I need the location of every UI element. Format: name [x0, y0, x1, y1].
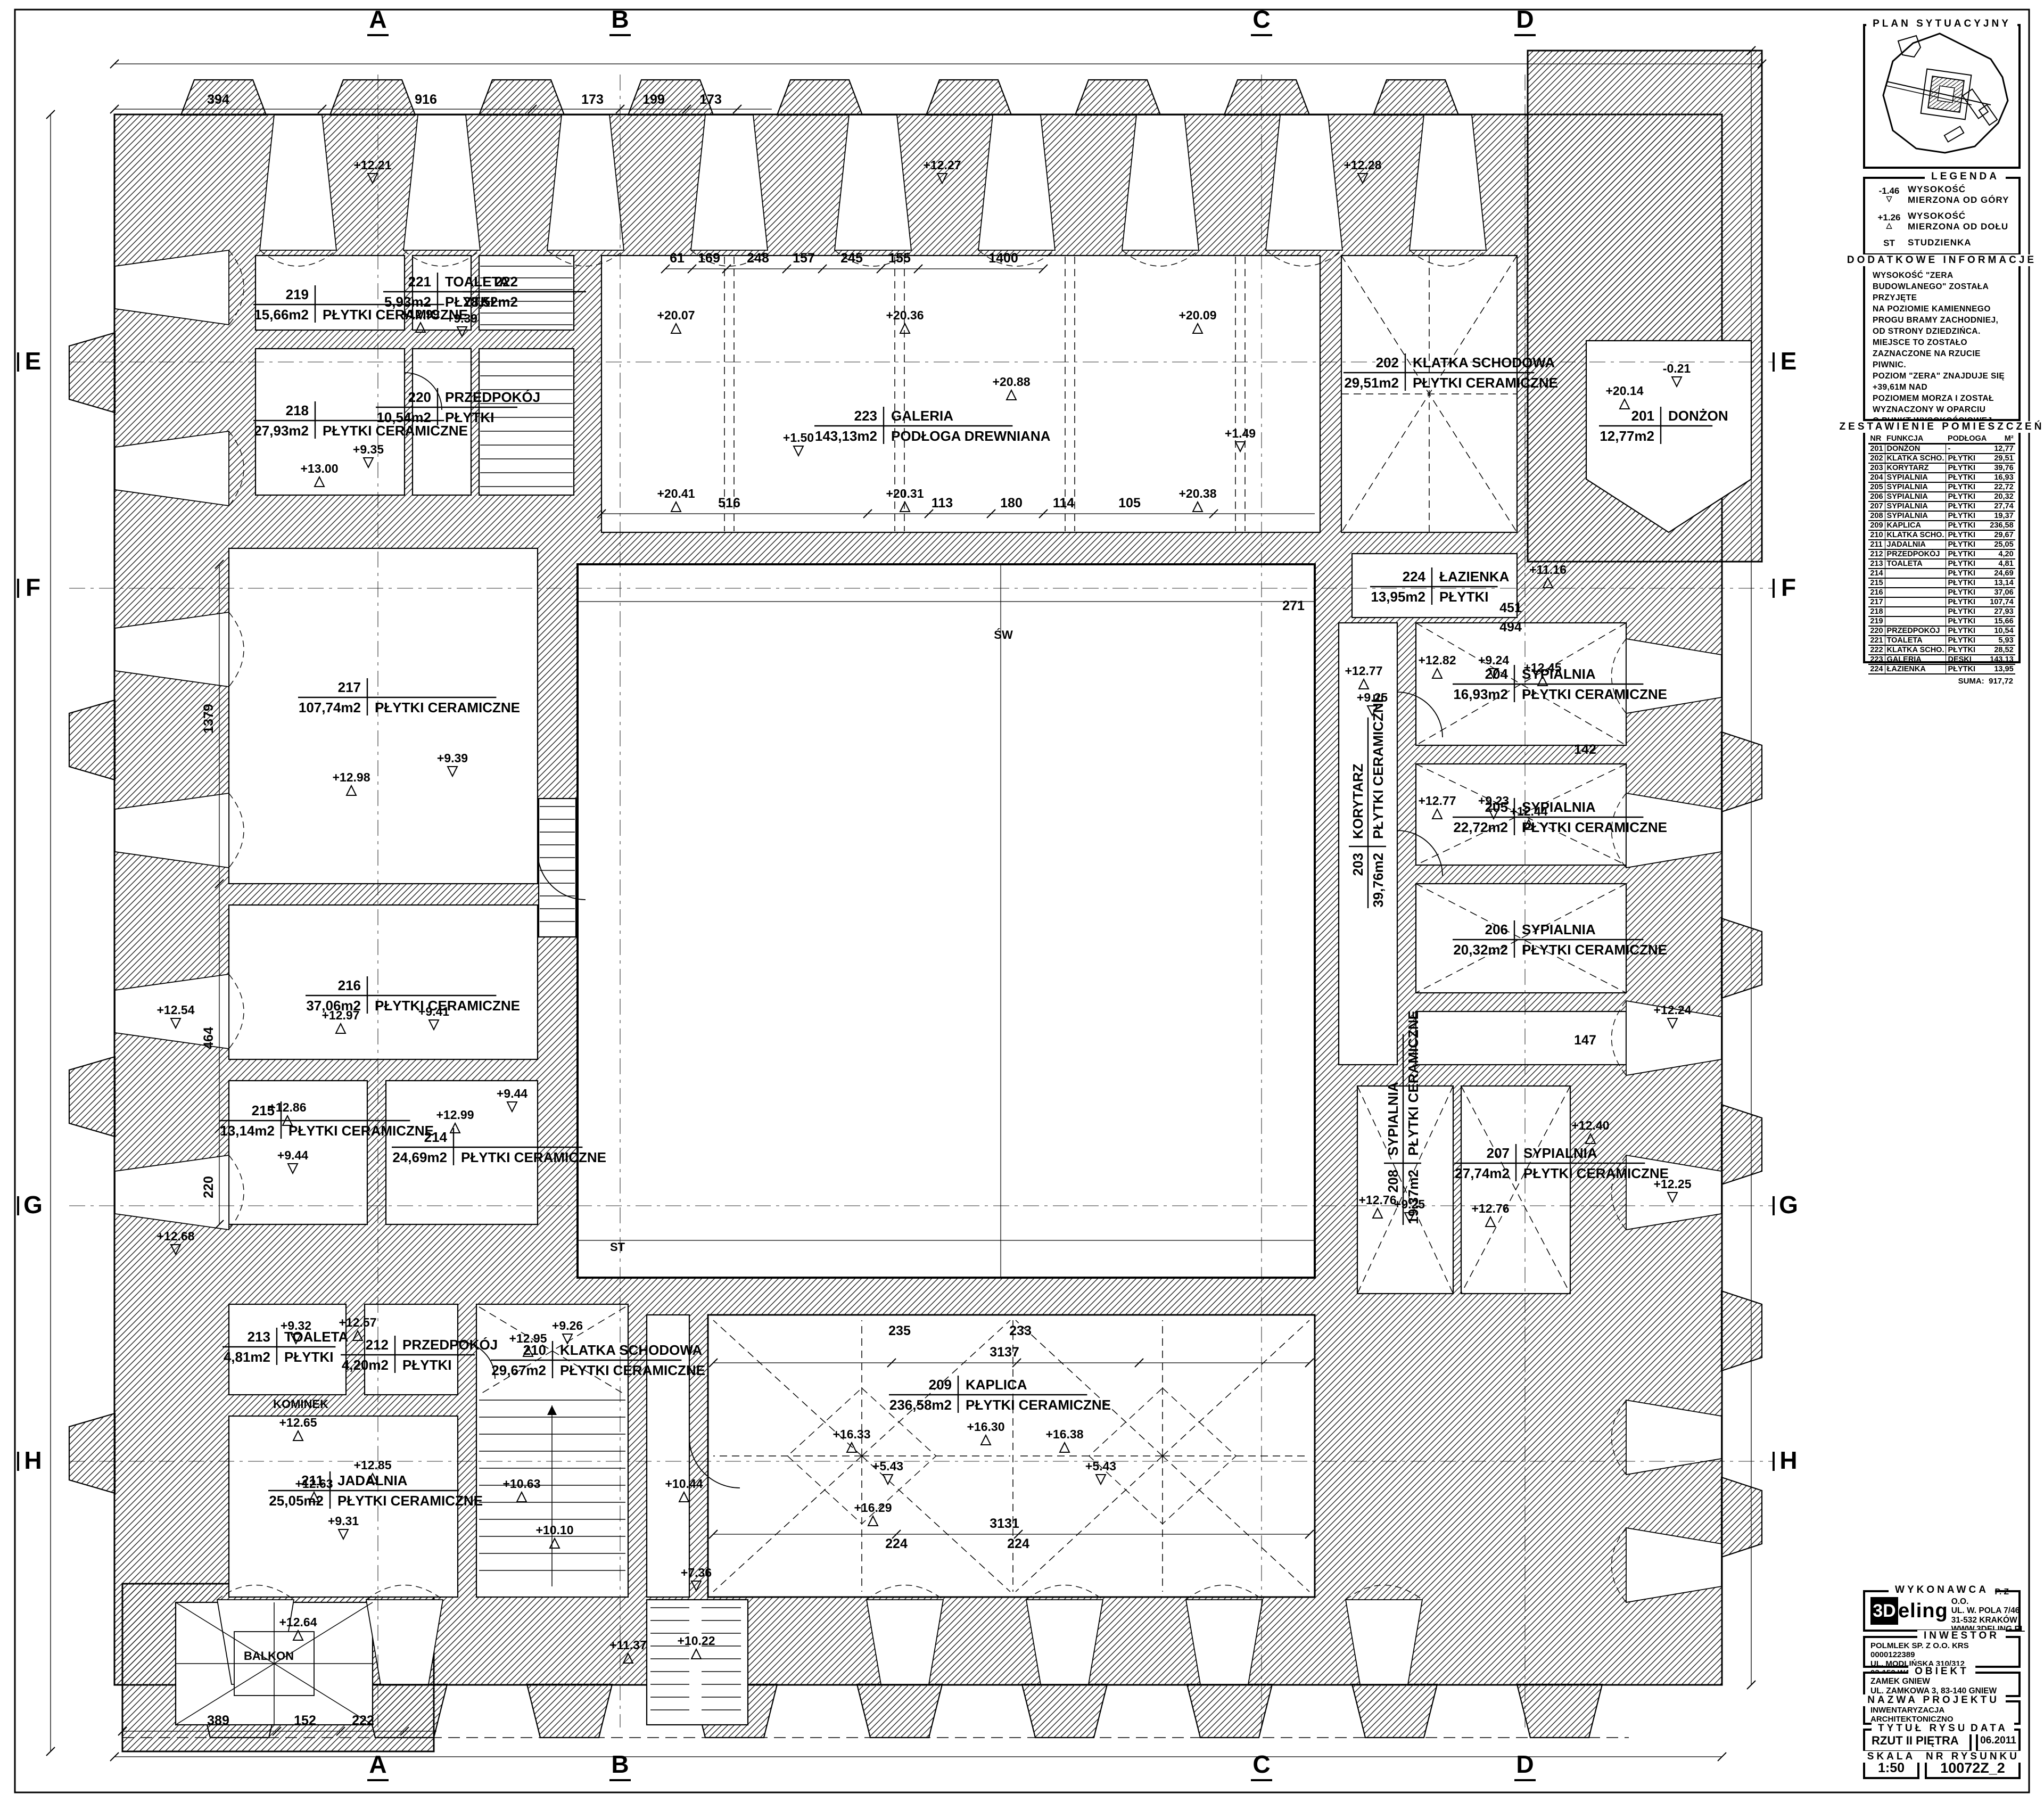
schedule-cell: 213	[1868, 559, 1885, 569]
schedule-cell: DONŻON	[1885, 444, 1946, 454]
room-number: 203	[1350, 853, 1366, 876]
schedule-cell: 223	[1868, 655, 1885, 664]
schedule-cell: 210	[1868, 530, 1885, 540]
schedule-cell: 4,81	[1988, 559, 2015, 569]
room-number: 224	[1403, 569, 1426, 585]
schedule-cell: 29,51	[1988, 454, 2015, 463]
dim-value: 248	[747, 251, 769, 266]
schedule-cell	[1885, 616, 1946, 626]
plan-annotation: ŚW	[994, 628, 1013, 641]
schedule-cell: PŁYTKI	[1946, 540, 1988, 549]
wall-mass	[1721, 732, 1762, 812]
wall-mass	[1721, 1105, 1762, 1184]
schedule-cell: PŁYTKI	[1946, 511, 1988, 521]
level-value: +5.43	[872, 1459, 903, 1473]
schedule-cell: PŁYTKI	[1946, 645, 1988, 655]
legend-symbol-value: -1.46	[1870, 187, 1908, 195]
dim-value: 245	[840, 251, 863, 266]
schedule-row: 202KLATKA SCHO.PŁYTKI29,51	[1868, 454, 2015, 463]
legend-symbol-icon: -1.46▽	[1870, 187, 1908, 203]
schedule-row: 219PŁYTKI15,66	[1868, 616, 2015, 626]
room-area: 29,51m2	[1344, 375, 1399, 391]
wall-mass	[926, 80, 1011, 115]
room-area: 24,69m2	[392, 1149, 447, 1165]
dim-value: 113	[932, 496, 953, 511]
dim-value: 3137	[990, 1345, 1019, 1360]
floor-plan-drawing: 3949161731991736116924815724515514005161…	[0, 0, 2044, 1802]
legend-symbol-glyph: △	[1870, 221, 1908, 229]
schedule-column-header: FUNKCJA	[1885, 434, 1946, 444]
level-value: +16.29	[854, 1501, 892, 1515]
schedule-cell: PŁYTKI	[1946, 549, 1988, 559]
level-value: +1.49	[1225, 426, 1256, 440]
room-name: KLATKA SCHODOWA	[1413, 355, 1555, 371]
level-value: +12.76	[1472, 1202, 1510, 1215]
dim-value: 516	[718, 496, 740, 511]
schedule-cell: 214	[1868, 569, 1885, 578]
schedule-row: 218PŁYTKI27,93	[1868, 607, 2015, 616]
schedule-cell: 203	[1868, 463, 1885, 473]
grid-label: D	[1516, 5, 1534, 33]
room-floor: PŁYTKI CERAMICZNE	[375, 700, 520, 715]
grid-label: E	[1781, 347, 1797, 375]
room-area: 4,20m2	[342, 1357, 389, 1373]
room-area: 29,67m2	[491, 1362, 546, 1378]
room-floor: PŁYTKI CERAMICZNE	[1522, 819, 1667, 835]
info-line: WYSOKOŚĆ "ZERA BUDOWLANEGO" ZOSTAŁA PRZY…	[1873, 270, 2012, 303]
wall-mass	[362, 1684, 447, 1738]
room-area: 39,76m2	[1370, 853, 1386, 908]
level-value: +12.40	[1572, 1118, 1610, 1132]
schedule-cell: 204	[1868, 473, 1885, 482]
level-value: +12.64	[279, 1615, 317, 1629]
schedule-cell: 13,14	[1988, 578, 2015, 588]
dim-value: 916	[415, 92, 437, 107]
level-value: +10.44	[665, 1477, 703, 1491]
level-value: +20.07	[657, 308, 695, 322]
legend-symbol-value: +1.26	[1870, 213, 1908, 221]
schedule-cell: DESKI	[1946, 655, 1988, 664]
dim-value: 3131	[990, 1516, 1019, 1531]
schedule-cell	[1885, 578, 1946, 588]
schedule-cell: PŁYTKI	[1946, 616, 1988, 626]
room-floor: PŁYTKI CERAMICZNE	[560, 1362, 705, 1378]
schedule-cell: 218	[1868, 607, 1885, 616]
schedule-cell: 224	[1868, 664, 1885, 674]
room	[1352, 554, 1517, 618]
schedule-row: 217PŁYTKI107,74	[1868, 597, 2015, 607]
schedule-cell: 208	[1868, 511, 1885, 521]
schedule-row: 215PŁYTKI13,14	[1868, 578, 2015, 588]
room-area: 13,95m2	[1371, 589, 1425, 605]
schedule-cell: PRZEDPOKÓJ	[1885, 626, 1946, 636]
schedule-cell: PŁYTKI	[1946, 521, 1988, 530]
dim-value: 199	[642, 92, 665, 107]
schedule-cell: KORYTARZ	[1885, 463, 1946, 473]
room-area: 16,93m2	[1453, 686, 1508, 702]
schedule-cell: KLATKA SCHO.	[1885, 645, 1946, 655]
schedule-row: 204SYPIALNIAPŁYTKI16,93	[1868, 473, 2015, 482]
schedule-cell: 13,95	[1988, 664, 2015, 674]
schedule-cell: 5,93	[1988, 636, 2015, 645]
schedule-cell: PŁYTKI	[1946, 636, 1988, 645]
schedule-row: 220PRZEDPOKÓJPŁYTKI10,54	[1868, 626, 2015, 636]
level-value: +20.31	[886, 487, 924, 500]
schedule-cell: 212	[1868, 549, 1885, 559]
company-line: 31-532 KRAKÓW	[1951, 1616, 2025, 1625]
schedule-cell: PŁYTKI	[1946, 454, 1988, 463]
legend-item-label: WYSOKOŚĆ MIERZONA OD DOŁU	[1908, 211, 2013, 232]
schedule-sum: SUMA: 917,72	[1865, 674, 2018, 686]
schedule-row: 221TOALETAPŁYTKI5,93	[1868, 636, 2015, 645]
dim-value: 114	[1053, 496, 1074, 511]
schedule-cell: 236,58	[1988, 521, 2015, 530]
titleblock-number: NR RYSUNKU 10072Z_2	[1925, 1757, 2021, 1779]
room-number: 209	[929, 1377, 952, 1393]
level-value: +12.24	[1654, 1003, 1692, 1017]
room-floor: PŁYTKI CERAMICZNE	[1405, 1010, 1421, 1156]
schedule-cell: 207	[1868, 501, 1885, 511]
level-value: +12.76	[1359, 1193, 1397, 1207]
level-value: +13.00	[301, 462, 339, 475]
dim-value: 180	[1000, 496, 1023, 511]
room-area: 12,77m2	[1600, 428, 1654, 444]
room-floor: PŁYTKI CERAMICZNE	[289, 1123, 434, 1139]
level-value: +10.10	[536, 1523, 574, 1537]
grid-label: E	[25, 347, 42, 375]
wall-mass	[527, 1684, 612, 1738]
schedule-cell: 24,69	[1988, 569, 2015, 578]
dim-value: 152	[294, 1713, 316, 1728]
room-name: SYPIALNIA	[1385, 1082, 1401, 1156]
titleblock-contractor: WYKONAWCA 3D eling 3DELING SP. Z O.O.UL.…	[1863, 1590, 2021, 1632]
dim-value: 222	[352, 1713, 374, 1728]
info-line: MIEJSCE TO ZOSTAŁO ZAZNACZONE NA RZUCIE …	[1873, 337, 2012, 371]
schedule-cell: JADALNIA	[1885, 540, 1946, 549]
level-value: +16.38	[1046, 1427, 1084, 1441]
level-value: +9.23	[1478, 794, 1509, 808]
schedule-cell: 202	[1868, 454, 1885, 463]
dim-value: 220	[201, 1176, 216, 1198]
level-value: +12.68	[157, 1229, 195, 1243]
grid-label: G	[23, 1191, 43, 1219]
grid-label: H	[1779, 1446, 1797, 1474]
schedule-cell: SYPIALNIA	[1885, 511, 1946, 521]
grid-label: F	[1781, 573, 1796, 601]
schedule-cell: SYPIALNIA	[1885, 473, 1946, 482]
dim-value: 1400	[988, 251, 1018, 266]
level-value: +12.65	[279, 1416, 317, 1429]
level-value: +11.37	[609, 1638, 647, 1652]
schedule-cell: SYPIALNIA	[1885, 482, 1946, 492]
grid-label: A	[369, 5, 386, 33]
titleblock-investor: INWESTOR POLMLEK SP. Z O.O. KRS 00001223…	[1863, 1636, 2021, 1668]
info-line: POZIOM "ZERA" ZNAJDUJE SIĘ +39,61M NAD	[1873, 371, 2012, 393]
room	[647, 1600, 748, 1725]
drawing-sheet: 3949161731991736116924815724515514005161…	[0, 0, 2044, 1802]
schedule-row: 205SYPIALNIAPŁYTKI22,72	[1868, 482, 2015, 492]
schedule-cell	[1885, 597, 1946, 607]
wall-mass	[1517, 1684, 1602, 1738]
grid-label: A	[369, 1750, 386, 1778]
level-value: +20.38	[1179, 487, 1217, 500]
room-area: 20,32m2	[1453, 942, 1508, 958]
dim-value: 233	[1009, 1323, 1032, 1338]
schedule-cell: TOALETA	[1885, 559, 1946, 569]
titleblock-drawing-title: TYTUŁ RYSUNKU RZUT II PIĘTRA	[1863, 1729, 1972, 1752]
room-number: 222	[495, 274, 518, 290]
titleblock-object: OBIEKT ZAMEK GNIEWUL. ZAMKOWA 3, 83-140 …	[1863, 1672, 2021, 1697]
schedule-cell: PŁYTKI	[1946, 578, 1988, 588]
info-line: OD STRONY DZIEDZIŃCA.	[1873, 326, 2012, 337]
level-value: +12.82	[1419, 653, 1456, 667]
grid-label: B	[611, 5, 629, 33]
room-area: 22,72m2	[1453, 819, 1508, 835]
schedule-cell	[1885, 569, 1946, 578]
level-value: +9.41	[418, 1005, 449, 1018]
schedule-cell: PŁYTKI	[1946, 492, 1988, 501]
room-name: GALERIA	[891, 408, 953, 424]
schedule-row: 216PŁYTKI37,06	[1868, 588, 2015, 597]
level-value: +11.16	[1529, 563, 1567, 577]
room-number: 218	[286, 402, 309, 418]
dim-value: 464	[201, 1027, 216, 1049]
schedule-column-header: PODŁOGA	[1946, 434, 1988, 444]
room-floor: PŁYTKI CERAMICZNE	[461, 1149, 606, 1165]
wall-mass	[1721, 1477, 1762, 1557]
room	[229, 548, 538, 884]
dim-value: 173	[699, 92, 722, 107]
level-value: +12.25	[1654, 1177, 1692, 1191]
project-name-line: INWENTARYZACJA ARCHITEKTONICZNO	[1870, 1706, 2013, 1724]
grid-label: B	[611, 1750, 629, 1778]
room-schedule-box: ZESTAWIENIE POMIESZCZEŃ NRFUNKCJAPODŁOGA…	[1863, 427, 2021, 663]
level-value: +20.14	[1606, 384, 1644, 398]
investor-line: POLMLEK SP. Z O.O. KRS 0000122389	[1870, 1641, 2013, 1659]
investor-label: INWESTOR	[1917, 1630, 2006, 1642]
wall-mass	[1022, 1684, 1107, 1738]
schedule-cell: 201	[1868, 444, 1885, 454]
schedule-cell: PŁYTKI	[1946, 664, 1988, 674]
schedule-cell	[1885, 607, 1946, 616]
level-value: +9.25	[1357, 690, 1388, 704]
level-value: +12.95	[509, 1331, 547, 1345]
wall-mass	[1721, 1291, 1762, 1371]
room-schedule-title: ZESTAWIENIE POMIESZCZEŃ	[1833, 421, 2044, 433]
schedule-cell: 4,20	[1988, 549, 2015, 559]
room-number: 221	[408, 274, 431, 290]
room-floor: PODŁOGA DREWNIANA	[891, 428, 1051, 444]
wall-mass	[1224, 80, 1309, 115]
level-value: +12.77	[1345, 664, 1383, 678]
schedule-cell: 20,32	[1988, 492, 2015, 501]
schedule-cell: 211	[1868, 540, 1885, 549]
grid-label: H	[24, 1446, 42, 1474]
legend-item: +1.26△WYSOKOŚĆ MIERZONA OD DOŁU	[1870, 211, 2013, 232]
project-name-label: NAZWA PROJEKTU	[1861, 1694, 2006, 1706]
titleblock-scale: SKALA 1:50	[1863, 1757, 1919, 1779]
wall-mass	[69, 700, 115, 780]
schedule-row: 213TOALETAPŁYTKI4,81	[1868, 559, 2015, 569]
room-floor: PŁYTKI CERAMICZNE	[1523, 1165, 1669, 1181]
schedule-cell: 25,05	[1988, 540, 2015, 549]
room-area: 4,81m2	[224, 1349, 270, 1365]
level-value: +12.86	[269, 1100, 307, 1114]
level-value: +12.99	[436, 1108, 474, 1122]
schedule-row: 209KAPLICAPŁYTKI236,58	[1868, 521, 2015, 530]
titleblock-project: NAZWA PROJEKTU INWENTARYZACJA ARCHITEKTO…	[1863, 1700, 2021, 1725]
level-value: +12.45	[1524, 661, 1562, 674]
dim-value: 155	[888, 251, 911, 266]
level-value: +12.57	[339, 1315, 377, 1329]
wall-mass	[1721, 918, 1762, 998]
level-value: +9.44	[277, 1148, 308, 1162]
drawing-number-label: NR RYSUNKU	[1919, 1751, 2026, 1763]
schedule-cell: PŁYTKI	[1946, 626, 1988, 636]
legend-symbol-glyph: ▽	[1870, 195, 1908, 203]
room-floor: PŁYTKI	[445, 409, 494, 425]
level-value: +9.44	[497, 1087, 528, 1100]
schedule-row: 224ŁAZIENKAPŁYTKI13,95	[1868, 664, 2015, 674]
level-value: +7.36	[681, 1566, 712, 1579]
wall-mass	[777, 80, 862, 115]
room-area: 15,66m2	[254, 307, 309, 323]
info-line: POZIOMEM MORZA I ZOSTAŁ WYZNACZONY W OPA…	[1873, 393, 2012, 415]
schedule-cell: PŁYTKI	[1946, 597, 1988, 607]
dim-value: 169	[698, 251, 720, 266]
schedule-cell: 29,67	[1988, 530, 2015, 540]
plan-annotation: KOMINEK	[273, 1397, 328, 1411]
schedule-cell: 27,74	[1988, 501, 2015, 511]
legend-symbol-icon: ST	[1870, 239, 1908, 247]
schedule-cell: 209	[1868, 521, 1885, 530]
schedule-cell: PRZEDPOKÓJ	[1885, 549, 1946, 559]
level-value: +10.22	[678, 1634, 715, 1648]
schedule-cell: 205	[1868, 482, 1885, 492]
room-number: 220	[408, 389, 431, 405]
level-value: +20.36	[886, 308, 924, 322]
legend-item-label: STUDZIENKA	[1908, 237, 1972, 248]
legend-item: STSTUDZIENKA	[1870, 237, 2013, 248]
schedule-cell: SYPIALNIA	[1885, 492, 1946, 501]
scale-label: SKALA	[1861, 1751, 1922, 1763]
room-label: 20229,51m2KLATKA SCHODOWAPŁYTKI CERAMICZ…	[1344, 353, 1558, 391]
wall-mass	[479, 80, 564, 115]
room-area: 107,74m2	[299, 700, 361, 715]
room-name: PRZEDPOKÓJ	[445, 389, 540, 405]
dim-value: 224	[885, 1536, 908, 1551]
schedule-row: 201DONŻON-12,77	[1868, 444, 2015, 454]
schedule-row: 212PRZEDPOKÓJPŁYTKI4,20	[1868, 549, 2015, 559]
dim-value: 451	[1499, 600, 1522, 615]
wall-mass	[330, 80, 415, 115]
schedule-column-header: M²	[1988, 434, 2015, 444]
schedule-cell	[1885, 588, 1946, 597]
wall-mass	[1352, 1684, 1437, 1738]
level-value: +12.99	[402, 307, 440, 321]
schedule-cell: 216	[1868, 588, 1885, 597]
dim-value: 61	[670, 251, 685, 266]
room	[479, 256, 574, 330]
room-floor: PŁYTKI CERAMICZNE	[337, 1493, 483, 1509]
level-value: +10.63	[503, 1477, 541, 1491]
object-line: ZAMEK GNIEW	[1870, 1677, 2013, 1686]
room-area: 27,93m2	[254, 423, 309, 439]
schedule-cell: PŁYTKI	[1946, 501, 1988, 511]
additional-info-title: DODATKOWE INFORMACJE	[1841, 254, 2043, 266]
schedule-row: 211JADALNIAPŁYTKI25,05	[1868, 540, 2015, 549]
level-value: +16.30	[967, 1420, 1005, 1434]
dim-value: 394	[207, 92, 229, 107]
schedule-cell: TOALETA	[1885, 636, 1946, 645]
schedule-cell: 22,72	[1988, 482, 2015, 492]
level-value: +9.26	[552, 1319, 583, 1332]
level-value: +1.50	[783, 431, 814, 445]
schedule-cell: 107,74	[1988, 597, 2015, 607]
schedule-cell: SYPIALNIA	[1885, 501, 1946, 511]
date-label: DATA	[1964, 1723, 2014, 1734]
schedule-cell: 39,76	[1988, 463, 2015, 473]
schedule-cell: 28,52	[1988, 645, 2015, 655]
schedule-cell: 15,66	[1988, 616, 2015, 626]
level-value: +9.39	[447, 311, 477, 325]
room	[229, 905, 538, 1059]
company-line: UL. W. POLA 7/46	[1951, 1606, 2025, 1616]
dim-value: 389	[207, 1713, 229, 1728]
grid-label: F	[26, 573, 40, 601]
site-map	[1865, 26, 2018, 166]
level-value: +12.63	[295, 1477, 333, 1491]
room	[578, 564, 1315, 1278]
schedule-cell: 27,93	[1988, 607, 2015, 616]
legend-title: LEGENDA	[1925, 171, 2006, 183]
room-name: SYPIALNIA	[1523, 1145, 1597, 1161]
info-line: NA POZIOMIE KAMIENNEGO PROGU BRAMY ZACHO…	[1873, 303, 2012, 326]
titleblock-date: DATA 06.2011	[1976, 1729, 2021, 1752]
contractor-label: WYKONAWCA	[1889, 1584, 1995, 1596]
level-value: +9.39	[437, 751, 468, 765]
room-number: 201	[1631, 408, 1654, 424]
schedule-cell: PŁYTKI	[1946, 607, 1988, 616]
dim-value: 157	[793, 251, 815, 266]
company-logo-text: eling	[1898, 1600, 1948, 1623]
schedule-cell: PŁYTKI	[1946, 482, 1988, 492]
room-name: SYPIALNIA	[1522, 921, 1596, 937]
dim-value: 494	[1499, 620, 1522, 635]
room-name: KLATKA SCHODOWA	[560, 1342, 702, 1358]
schedule-cell: 206	[1868, 492, 1885, 501]
legend-box: LEGENDA -1.46▽WYSOKOŚĆ MIERZONA OD GÓRY+…	[1863, 177, 2021, 256]
room-label: 21029,67m2KLATKA SCHODOWAPŁYTKI CERAMICZ…	[491, 1341, 705, 1378]
schedule-cell: 143,13	[1988, 655, 2015, 664]
room-floor: PŁYTKI CERAMICZNE	[1522, 686, 1667, 702]
room-name: PRZEDPOKÓJ	[402, 1337, 498, 1353]
wall-mass	[1075, 80, 1160, 115]
additional-info-box: DODATKOWE INFORMACJE WYSOKOŚĆ "ZERA BUDO…	[1863, 260, 2021, 421]
level-value: -0.21	[1663, 361, 1691, 375]
level-value: +20.88	[993, 375, 1031, 389]
schedule-cell: PŁYTKI	[1946, 588, 1988, 597]
schedule-row: 222KLATKA SCHO.PŁYTKI28,52	[1868, 645, 2015, 655]
room-name: DONŻON	[1668, 408, 1728, 424]
level-value: +12.77	[1419, 794, 1456, 808]
schedule-cell: ŁAZIENKA	[1885, 664, 1946, 674]
room-area: 236,58m2	[889, 1397, 952, 1413]
level-value: +12.44	[1510, 804, 1548, 818]
schedule-cell: 10,54	[1988, 626, 2015, 636]
room-number: 219	[286, 286, 309, 302]
wall-mass	[1373, 80, 1458, 115]
